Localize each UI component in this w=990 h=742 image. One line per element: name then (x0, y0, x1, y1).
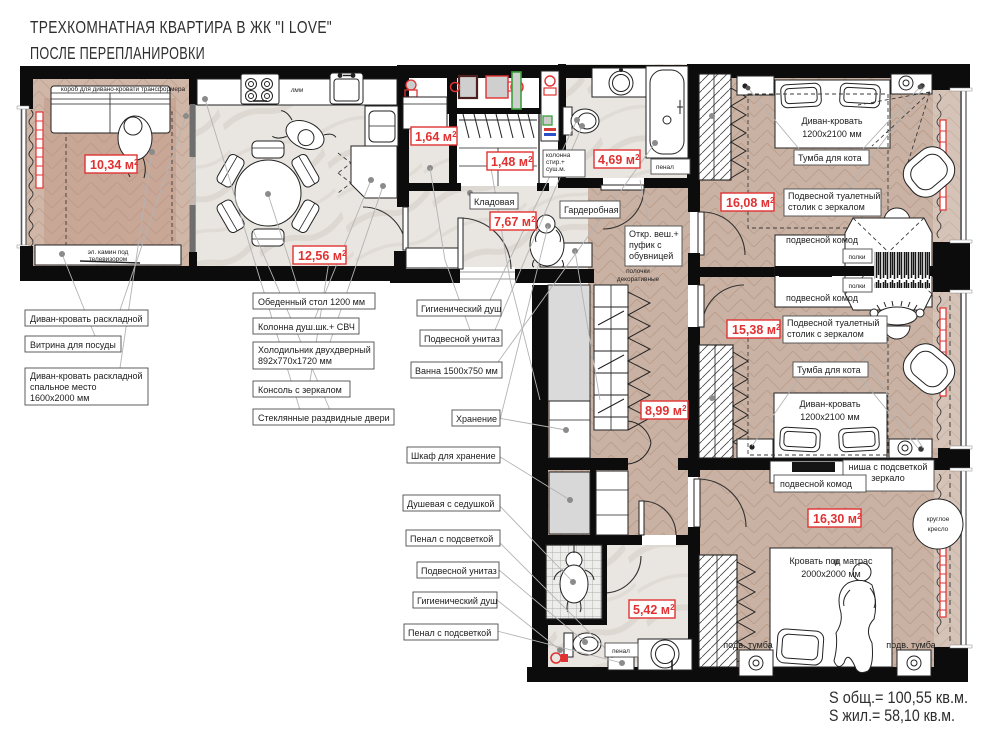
svg-text:2000х2000 мм: 2000х2000 мм (801, 569, 860, 579)
svg-text:Подвесной туалетный: Подвесной туалетный (788, 191, 880, 201)
svg-text:1200х2100 мм: 1200х2100 мм (802, 129, 861, 139)
svg-text:Откр. веш.+: Откр. веш.+ (629, 229, 679, 239)
svg-text:кресло: кресло (928, 526, 949, 533)
svg-text:1600х2000 мм: 1600х2000 мм (30, 393, 89, 403)
svg-text:колонна: колонна (546, 152, 571, 159)
svg-text:Хранение: Хранение (456, 414, 497, 424)
svg-text:эл. камин под: эл. камин под (88, 249, 129, 256)
svg-text:круглое: круглое (927, 516, 950, 523)
svg-text:декоративные: декоративные (617, 276, 660, 283)
svg-text:S жил.= 58,10 кв.м.: S жил.= 58,10 кв.м. (829, 707, 955, 725)
svg-text:Холодильник двухдверный: Холодильник двухдверный (258, 345, 371, 355)
svg-text:зеркало: зеркало (871, 473, 905, 483)
svg-text:5,42 м2: 5,42 м2 (633, 603, 675, 617)
svg-text:пенал: пенал (612, 648, 630, 655)
svg-text:Душевая с седушкой: Душевая с седушкой (407, 499, 494, 509)
svg-text:спальное место: спальное место (30, 382, 97, 392)
svg-text:10,34 м2: 10,34 м2 (90, 158, 139, 172)
svg-text:суш.м.: суш.м. (546, 166, 566, 173)
svg-text:телевизором: телевизором (89, 256, 127, 263)
svg-text:подвесной комод: подвесной комод (786, 293, 859, 303)
svg-text:15,38 м2: 15,38 м2 (732, 323, 781, 337)
svg-text:ТРЕХКОМНАТНАЯ КВАРТИРА В ЖК "I: ТРЕХКОМНАТНАЯ КВАРТИРА В ЖК "I LOVE" (30, 17, 332, 37)
svg-text:Шкаф для хранение: Шкаф для хранение (411, 451, 496, 461)
svg-text:Пенал с подсветкой: Пенал с подсветкой (410, 534, 493, 544)
svg-text:Диван-кровать раскладной: Диван-кровать раскладной (30, 314, 143, 324)
svg-text:Кладовая: Кладовая (474, 197, 514, 207)
svg-text:ПОСЛЕ ПЕРЕПЛАНИРОВКИ: ПОСЛЕ ПЕРЕПЛАНИРОВКИ (30, 43, 205, 63)
svg-text:Диван-кровать: Диван-кровать (799, 399, 860, 409)
svg-text:4,69 м2: 4,69 м2 (598, 153, 640, 167)
svg-text:Гигиенический душ: Гигиенический душ (421, 304, 501, 314)
svg-text:16,30 м2: 16,30 м2 (813, 512, 862, 526)
svg-text:Подвесной туалетный: Подвесной туалетный (787, 318, 879, 328)
svg-text:1200х2100 мм: 1200х2100 мм (800, 412, 859, 422)
svg-text:подв. тумба: подв. тумба (723, 640, 772, 650)
svg-text:Тумба для кота: Тумба для кота (798, 153, 862, 163)
svg-text:Тумба для кота: Тумба для кота (797, 365, 861, 375)
svg-text:Подвесной унитаз: Подвесной унитаз (421, 566, 497, 576)
svg-text:8,99 м2: 8,99 м2 (645, 404, 687, 418)
svg-text:1,64 м2: 1,64 м2 (415, 130, 457, 144)
svg-text:S общ.= 100,55 кв.м.: S общ.= 100,55 кв.м. (829, 689, 968, 707)
svg-text:пенал: пенал (656, 164, 674, 171)
svg-text:Пенал с подсветкой: Пенал с подсветкой (408, 628, 491, 638)
svg-text:столик с зеркалом: столик с зеркалом (787, 329, 864, 339)
svg-text:7,67 м2: 7,67 м2 (494, 215, 536, 229)
svg-text:короб для дивано-кровати транс: короб для дивано-кровати трансформера (61, 85, 186, 93)
svg-text:Гигиенический душ: Гигиенический душ (417, 596, 497, 606)
svg-text:обувницей: обувницей (629, 251, 673, 261)
svg-text:Обеденный стол 1200 мм: Обеденный стол 1200 мм (258, 297, 365, 307)
svg-text:Консоль с зеркалом: Консоль с зеркалом (258, 385, 342, 395)
svg-text:Ванна 1500х750 мм: Ванна 1500х750 мм (415, 366, 498, 376)
svg-text:столик с зеркалом: столик с зеркалом (788, 202, 865, 212)
svg-text:подв. тумба: подв. тумба (886, 640, 935, 650)
svg-text:Колонна душ.шк.+ СВЧ: Колонна душ.шк.+ СВЧ (258, 322, 355, 332)
svg-text:1,48 м2: 1,48 м2 (491, 155, 533, 169)
svg-text:Кровать под матрас: Кровать под матрас (789, 556, 873, 566)
svg-text:пуфик с: пуфик с (629, 240, 662, 250)
svg-text:Диван-кровать раскладной: Диван-кровать раскладной (30, 371, 143, 381)
svg-text:Гардеробная: Гардеробная (564, 205, 619, 215)
svg-text:892х770х1720 мм: 892х770х1720 мм (258, 356, 332, 366)
svg-text:полки: полки (849, 254, 866, 261)
svg-text:полки: полки (849, 283, 866, 290)
svg-text:стир.+: стир.+ (546, 159, 565, 166)
svg-text:16,08 м2: 16,08 м2 (726, 196, 775, 210)
svg-text:Витрина для посуды: Витрина для посуды (30, 340, 116, 350)
svg-text:Подвесной унитаз: Подвесной унитаз (424, 334, 500, 344)
svg-text:12,56 м2: 12,56 м2 (298, 249, 347, 263)
svg-text:подвесной комод: подвесной комод (780, 479, 853, 489)
svg-text:лмм: лмм (290, 87, 304, 94)
svg-text:ниша с подсветкой: ниша с подсветкой (849, 462, 928, 472)
svg-text:Стеклянные раздвидные двери: Стеклянные раздвидные двери (258, 413, 390, 423)
svg-text:подвесной комод: подвесной комод (786, 235, 859, 245)
svg-text:полочки: полочки (626, 268, 650, 275)
svg-text:Диван-кровать: Диван-кровать (801, 116, 862, 126)
